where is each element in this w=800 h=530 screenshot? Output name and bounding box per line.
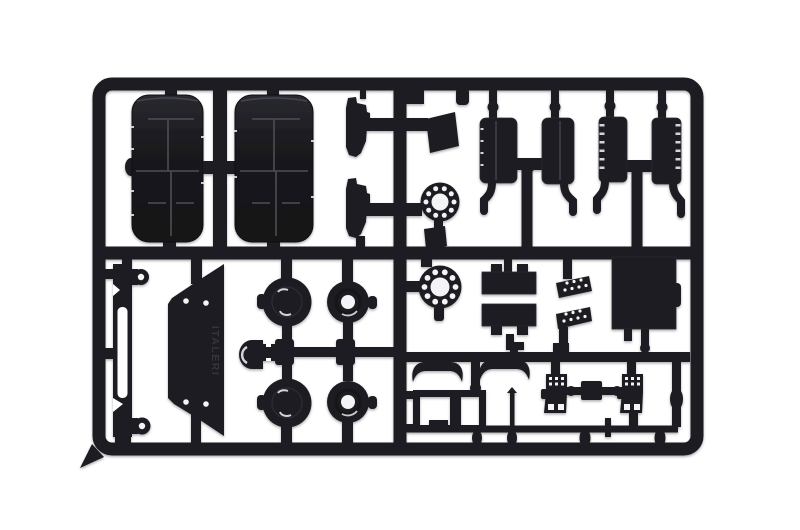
tire-crossbar (203, 161, 237, 174)
runner-top-boss (397, 88, 424, 104)
gate-teardrop (472, 430, 482, 446)
right-gate-bulge (670, 388, 683, 410)
crossbar-upper (366, 118, 428, 131)
gate-teardrop (655, 429, 666, 447)
bolt-circle-flange-1 (421, 183, 460, 222)
photo-background: ITALERI (0, 0, 800, 530)
runner-vertical-3b (632, 160, 643, 253)
gate-tick (605, 418, 611, 437)
runner-spool-1 (275, 339, 294, 365)
gate-teardrop (580, 429, 591, 447)
hanging-gate (456, 88, 469, 105)
runner-vertical-2 (394, 84, 407, 449)
embossed-brand-text: ITALERI (209, 326, 221, 377)
tire-half-1 (125, 88, 204, 249)
runner-spool-2 (336, 339, 355, 365)
crossbar-lower (366, 203, 422, 216)
sprue-photo: ITALERI (0, 0, 800, 530)
gate-teardrop (507, 430, 517, 446)
mudflap-1 (426, 112, 459, 153)
